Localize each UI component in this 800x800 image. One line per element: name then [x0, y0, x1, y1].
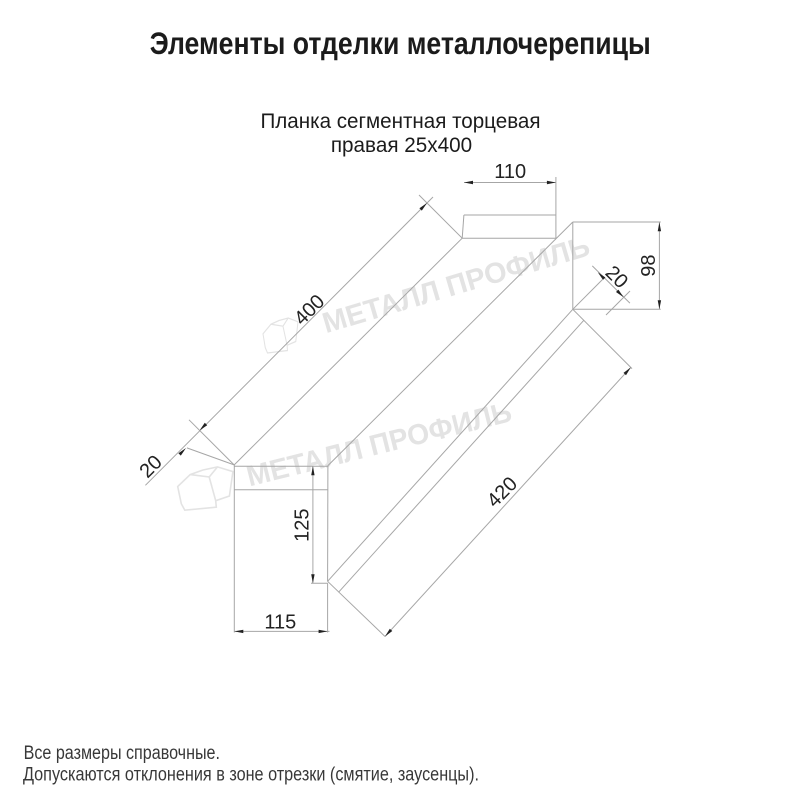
svg-text:115: 115 [264, 611, 296, 633]
svg-text:Планка сегментная торцевая: Планка сегментная торцевая [261, 110, 541, 133]
svg-text:110: 110 [494, 161, 526, 183]
svg-text:Все размеры справочные.: Все размеры справочные. [24, 743, 220, 764]
svg-text:Допускаются отклонения в зоне: Допускаются отклонения в зоне отрезки (с… [23, 764, 479, 785]
svg-text:125: 125 [292, 509, 314, 542]
svg-text:Элементы отделки металлочерепи: Элементы отделки металлочерепицы [150, 25, 651, 61]
svg-text:правая 25х400: правая 25х400 [331, 134, 472, 157]
svg-text:98: 98 [638, 254, 660, 276]
